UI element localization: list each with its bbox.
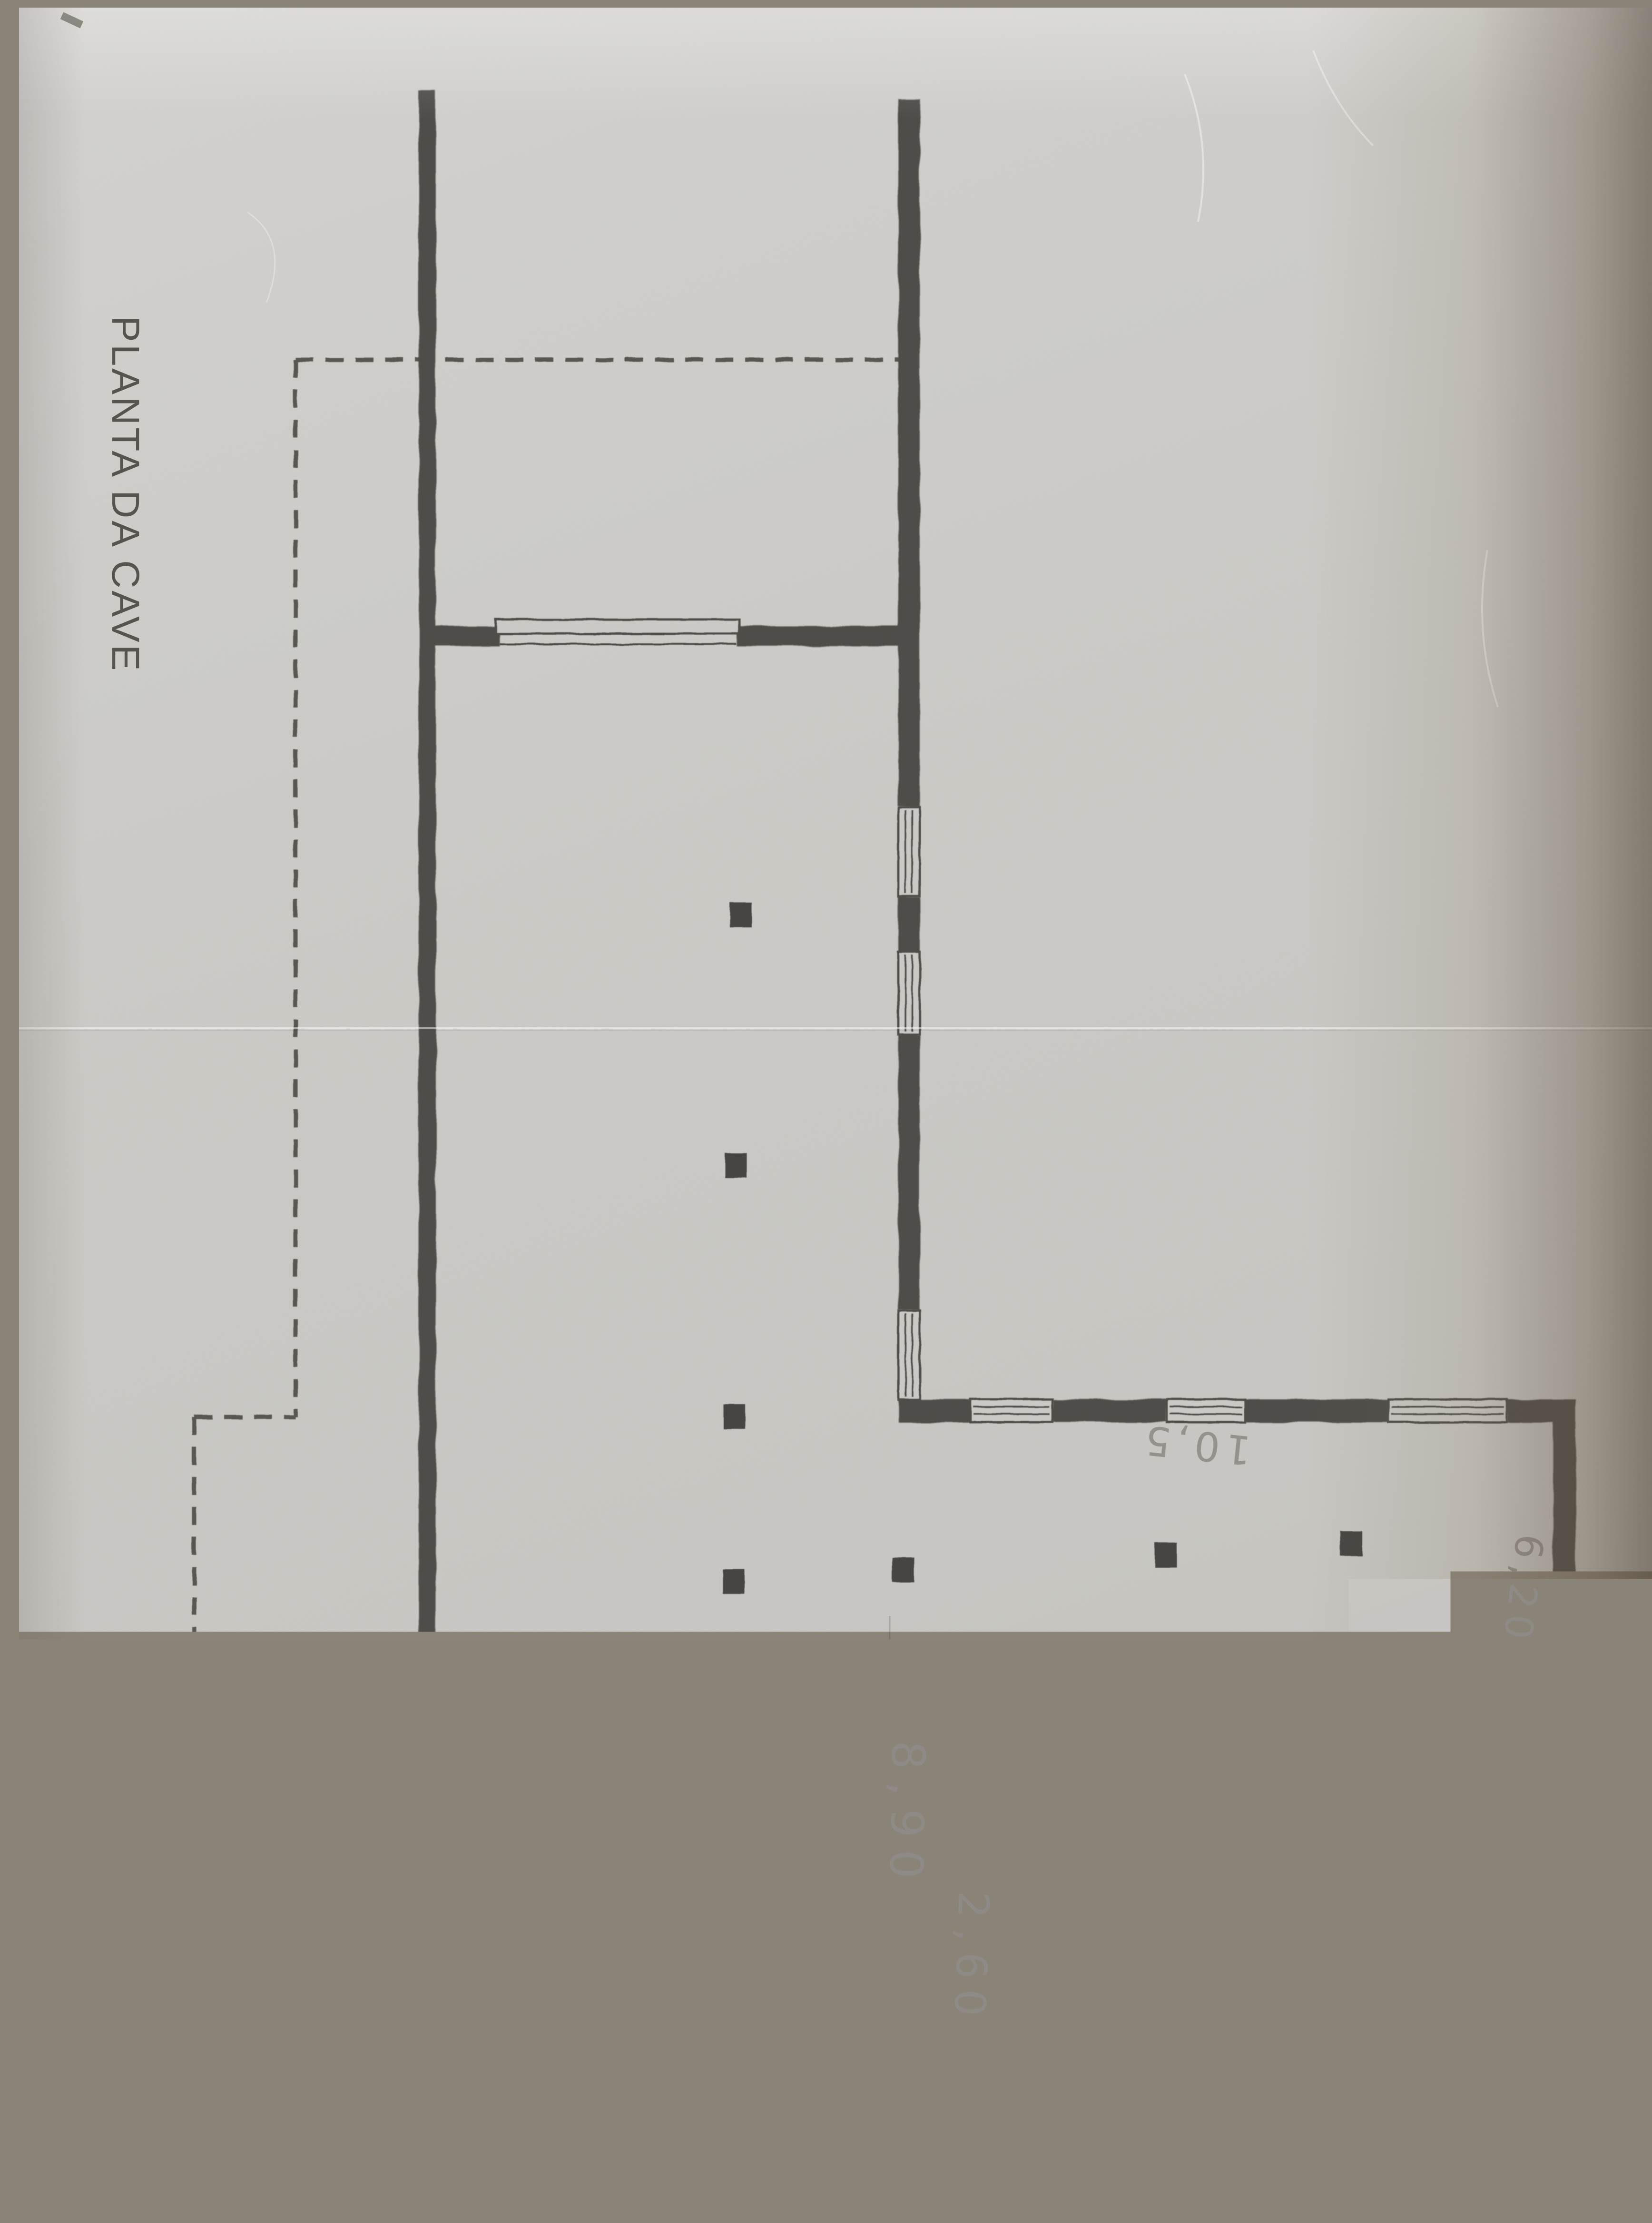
floor-plan-photo: PLANTA DA CAVE 8,90 2,60 10,5 6,20 [19, 8, 1652, 2215]
floor-plan-drawing: PLANTA DA CAVE 8,90 2,60 10,5 6,20 [19, 8, 1652, 2215]
film-grain [19, 8, 1652, 2215]
